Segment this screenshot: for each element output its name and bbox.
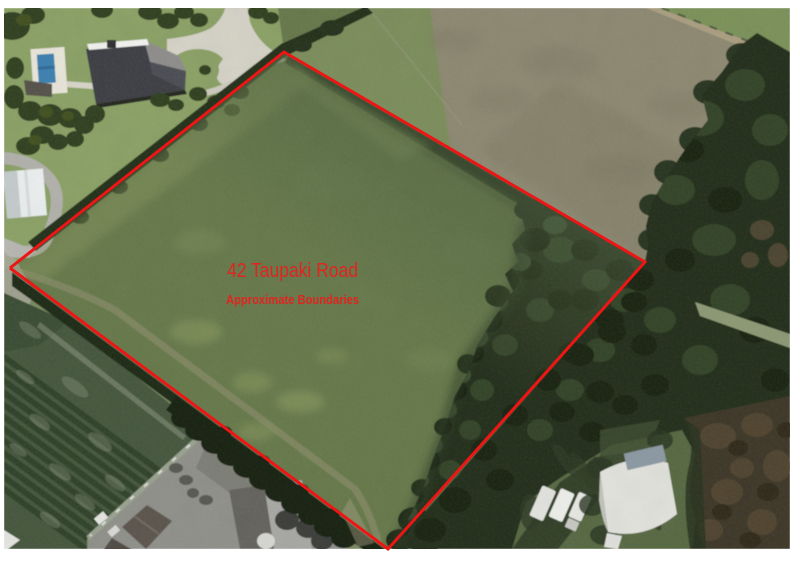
svg-text:42 Taupaki Road: 42 Taupaki Road [227,259,358,282]
svg-text:Approximate Boundaries: Approximate Boundaries [226,292,359,307]
